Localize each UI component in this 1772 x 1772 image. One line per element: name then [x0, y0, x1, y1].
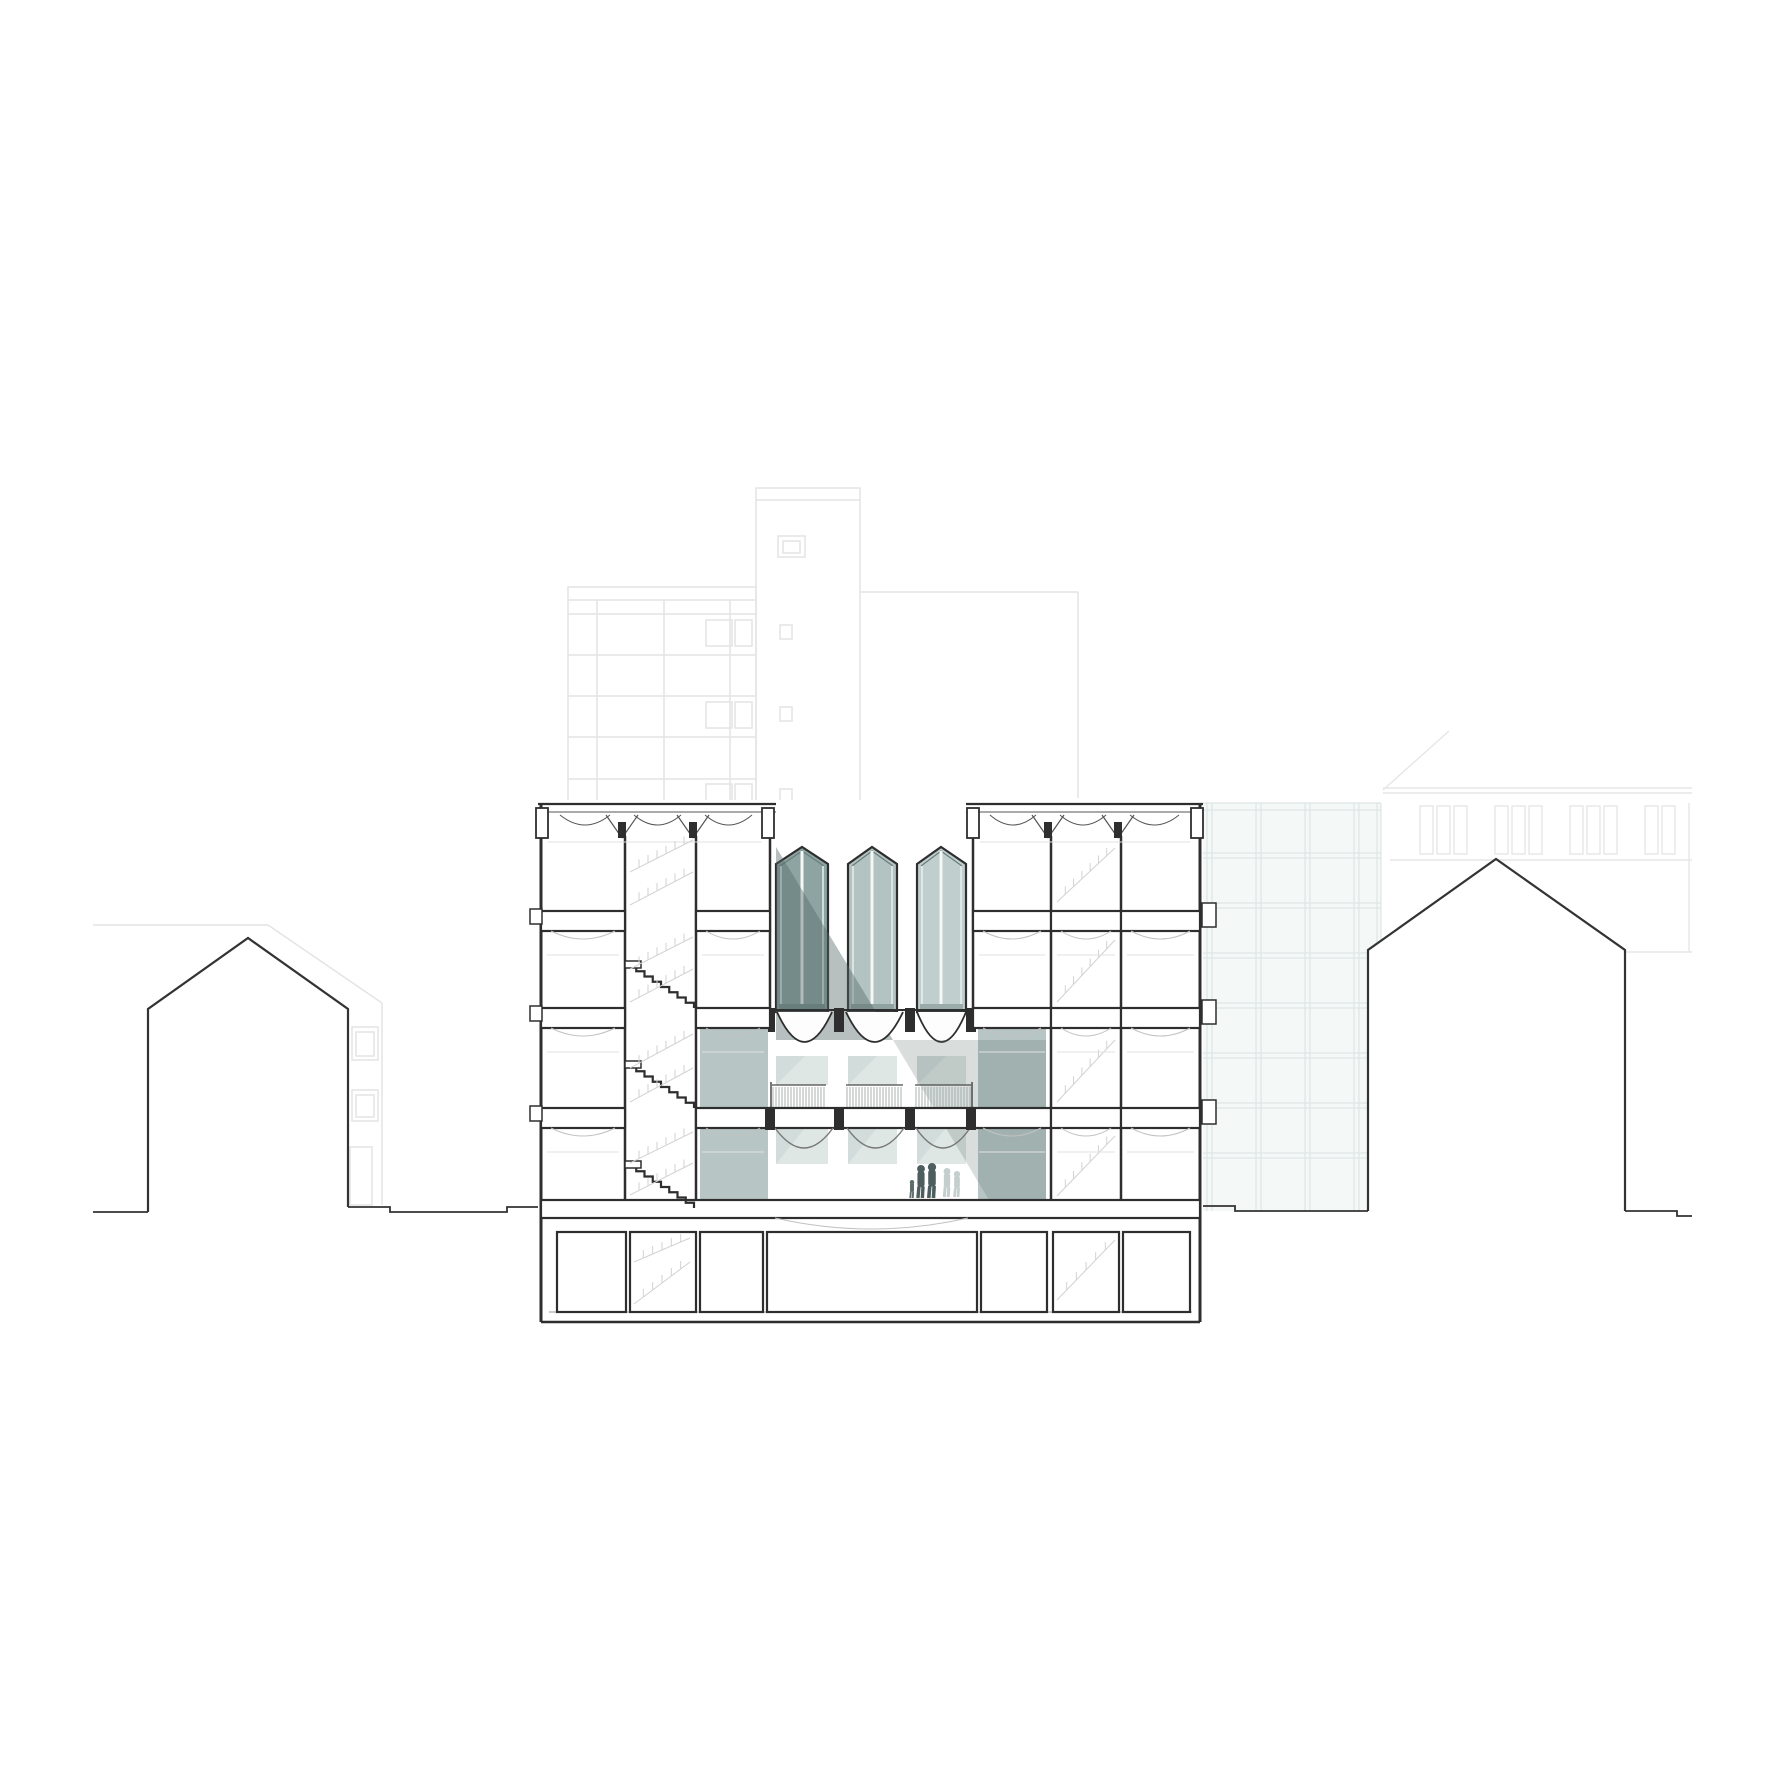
section-elevation-svg [0, 0, 1772, 1772]
person-figure [928, 1163, 936, 1198]
ghost-grid-facade-right [1203, 803, 1381, 1211]
context-house-right [1368, 859, 1625, 1211]
context-house-left [148, 938, 348, 1212]
person-figure [910, 1180, 914, 1198]
atrium-ceiling-vaults [765, 1008, 976, 1042]
person-figure [954, 1171, 960, 1197]
architectural-section-drawing [0, 0, 1772, 1772]
person-figure [917, 1165, 925, 1198]
basement-structure [541, 1232, 1200, 1322]
person-figure [944, 1168, 951, 1197]
ghost-background-tower [568, 488, 1078, 826]
